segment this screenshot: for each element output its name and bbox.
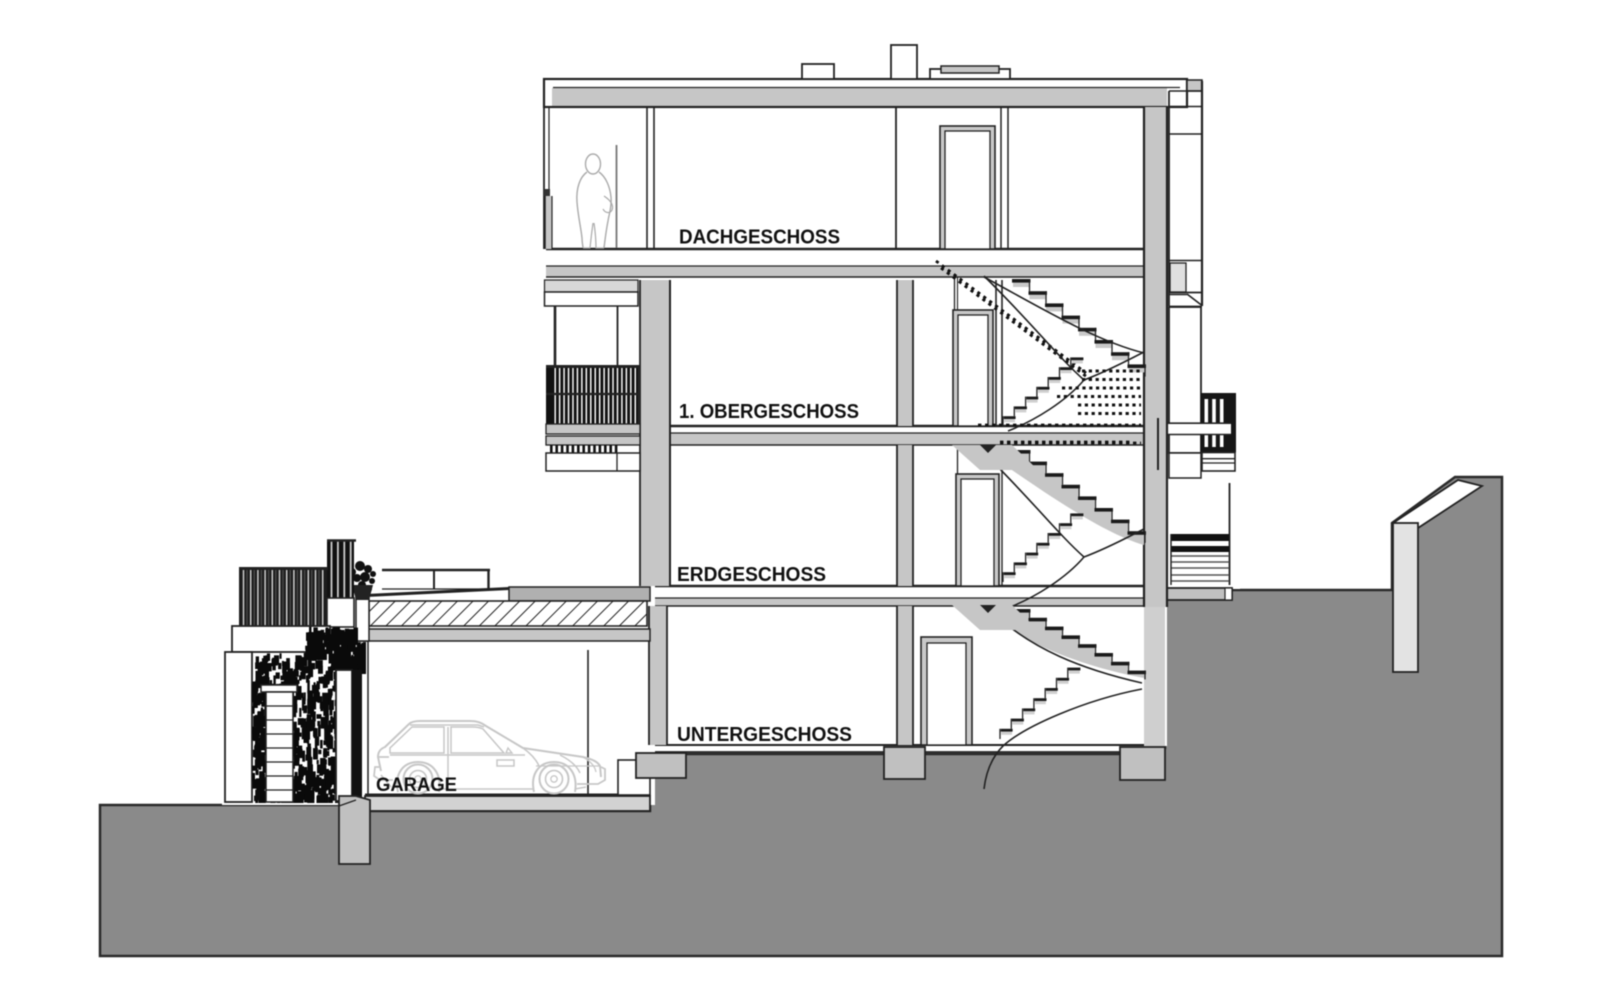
svg-text:DACHGESCHOSS: DACHGESCHOSS [679, 227, 840, 249]
svg-text:GARAGE: GARAGE [376, 775, 457, 796]
svg-text:ERDGESCHOSS: ERDGESCHOSS [677, 564, 826, 586]
svg-text:UNTERGESCHOSS: UNTERGESCHOSS [677, 724, 852, 746]
svg-text:1. OBERGESCHOSS: 1. OBERGESCHOSS [679, 401, 859, 423]
